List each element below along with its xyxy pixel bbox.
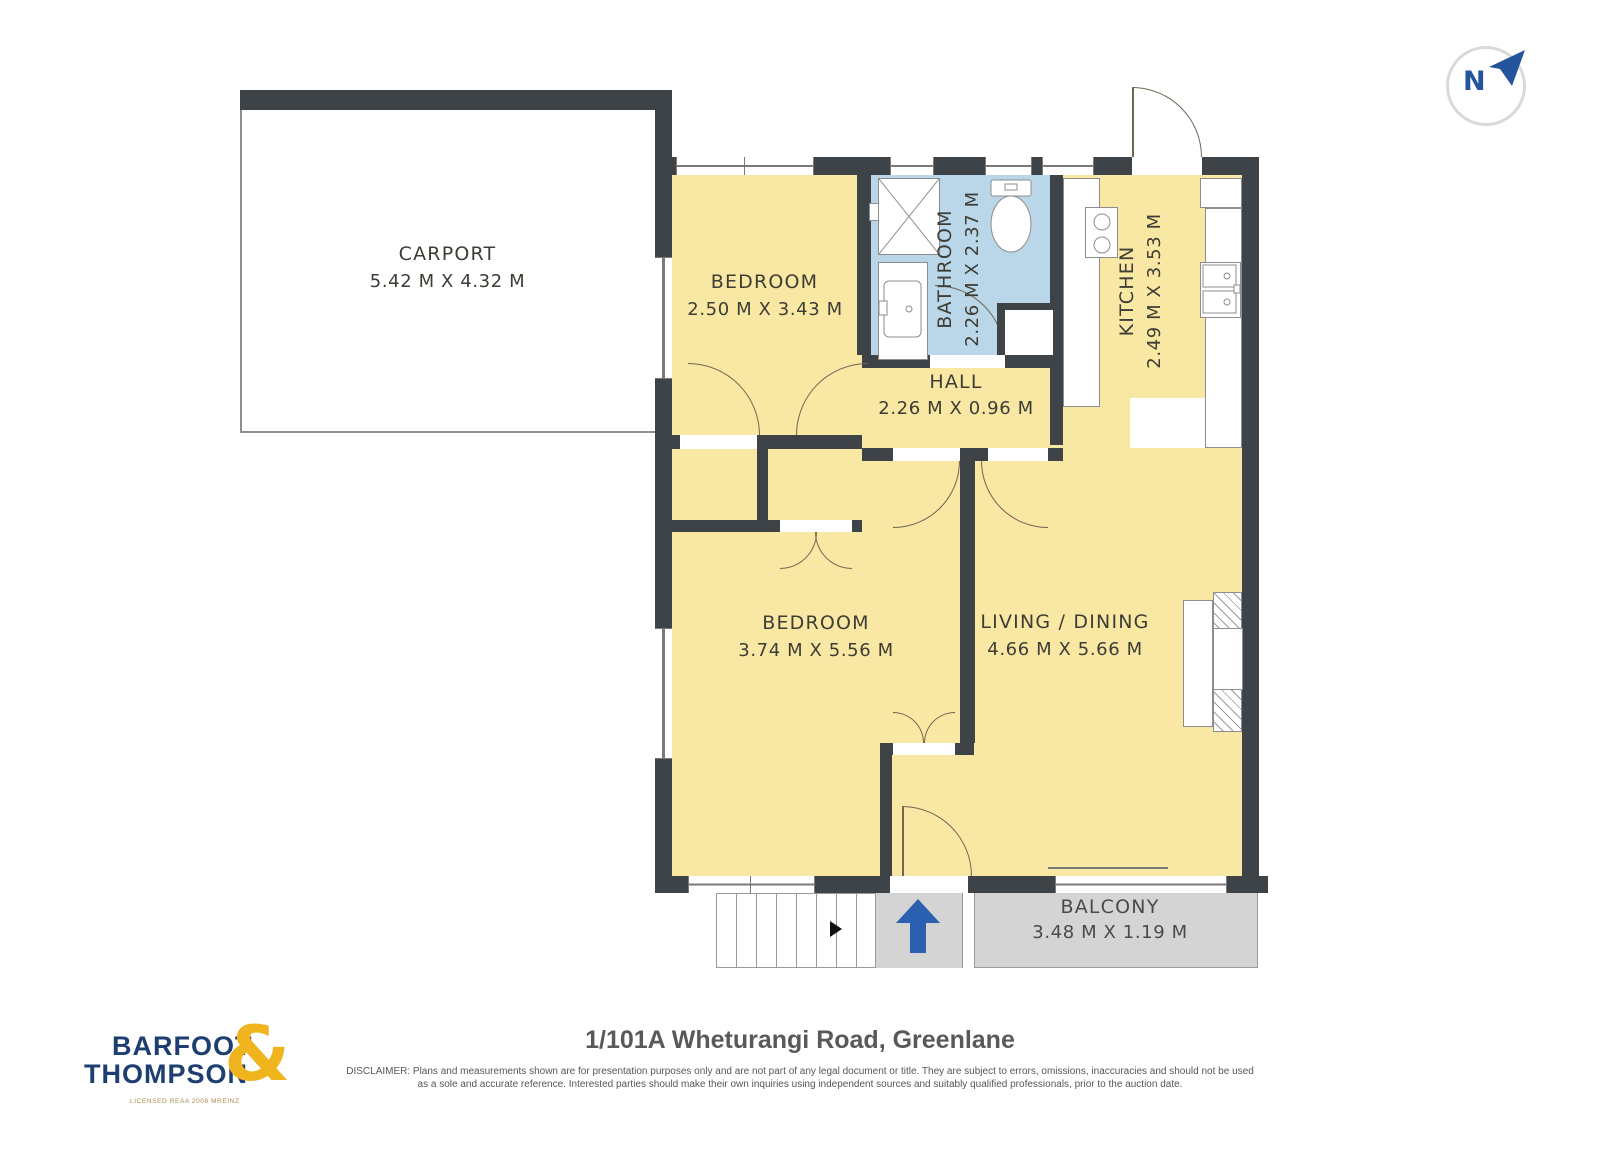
hall-label: HALL (862, 371, 1050, 393)
wall (975, 448, 988, 461)
kitchen-counter (1205, 208, 1242, 448)
window (1055, 876, 1227, 893)
balcony-dims: 3.48 M X 1.19 M (980, 922, 1240, 943)
sliding-door-line (1048, 867, 1168, 869)
wall (862, 448, 893, 461)
wall (1048, 448, 1063, 461)
toilet-icon (988, 179, 1034, 257)
hot-water-cupboard (997, 303, 1053, 355)
kitchen-label: KITCHEN (1116, 191, 1138, 391)
carport-label: CARPORT (240, 243, 655, 265)
wall (757, 435, 862, 449)
wardrobe-opening (780, 520, 852, 532)
window (744, 157, 814, 175)
bedroom-main-dims: 3.74 M X 5.56 M (672, 640, 960, 661)
entry-door-leaf (902, 806, 904, 876)
bathroom-dims: 2.26 M X 2.37 M (962, 169, 983, 369)
wall (672, 520, 768, 532)
wall (968, 876, 1055, 893)
balcony-label: BALCONY (980, 896, 1240, 918)
compass-north-label: N (1463, 66, 1486, 97)
wall (672, 435, 680, 449)
front-door-leaf (1132, 87, 1134, 157)
entry-direction-arrow-icon (896, 899, 940, 953)
bathroom-sink-icon (878, 262, 928, 360)
wall (655, 757, 672, 893)
wall (655, 157, 676, 175)
shower-head-icon (869, 203, 879, 221)
kitchen-counter (1200, 178, 1242, 208)
wall (880, 755, 892, 876)
stairs-direction-marker-icon (830, 921, 842, 937)
north-arrow-icon (1489, 50, 1527, 88)
kitchen-label-group: KITCHEN 2.49 M X 3.53 M (1111, 191, 1169, 391)
window (676, 157, 746, 175)
window (750, 876, 815, 893)
stairs (716, 893, 876, 968)
window (688, 876, 752, 893)
front-door-arc (1132, 87, 1202, 157)
address-title: 1/101A Wheturangi Road, Greenlane (0, 1026, 1600, 1055)
fireplace-hearth (1183, 600, 1213, 727)
kitchen-sink-icon (1200, 262, 1241, 318)
wall (240, 90, 672, 110)
wall (655, 377, 672, 628)
hall-bedroom-door-opening (893, 448, 960, 461)
bedroom-main-label: BEDROOM (672, 612, 960, 634)
disclaimer-line1: DISCLAIMER: Plans and measurements shown… (0, 1066, 1600, 1077)
floorplan-page: N CARPORT 5.42 M X 4.32 M (0, 0, 1600, 1167)
hall-living-door-opening (988, 448, 1048, 461)
living-label: LIVING / DINING (955, 611, 1175, 633)
window (655, 628, 672, 759)
entry-opening (890, 876, 968, 893)
wall (768, 520, 780, 532)
wall (1225, 876, 1268, 893)
wall (852, 520, 862, 532)
wall (880, 743, 893, 755)
wall (655, 876, 688, 893)
wall (960, 448, 975, 743)
bedroom-top-dims: 2.50 M X 3.43 M (660, 299, 870, 320)
wall (857, 175, 871, 355)
wall (813, 876, 890, 893)
wall (1005, 355, 1050, 368)
window (890, 157, 934, 175)
wall (1242, 157, 1259, 893)
bathroom-label-group: BATHROOM 2.26 M X 2.37 M (929, 169, 987, 369)
closet-opening (893, 743, 955, 755)
hall-dims: 2.26 M X 0.96 M (862, 398, 1050, 419)
disclaimer-line2: as a sole and accurate reference. Intere… (0, 1079, 1600, 1090)
carport-dims: 5.42 M X 4.32 M (240, 271, 655, 292)
landing-divider (962, 893, 975, 968)
window (1042, 157, 1094, 175)
wall (1092, 157, 1132, 175)
bedroom-door-opening (680, 435, 757, 449)
wall (955, 743, 974, 755)
logo-tagline: LICENSED REAA 2008 MREINZ (130, 1098, 240, 1105)
window (985, 157, 1032, 175)
front-door-opening (1132, 157, 1202, 175)
kitchen-dims: 2.49 M X 3.53 M (1144, 191, 1165, 391)
wall (812, 157, 890, 175)
living-dims: 4.66 M X 5.66 M (955, 639, 1175, 660)
bedroom-top-label: BEDROOM (672, 271, 857, 293)
bathroom-label: BATHROOM (934, 169, 956, 369)
fireplace-firebox (1213, 628, 1243, 690)
